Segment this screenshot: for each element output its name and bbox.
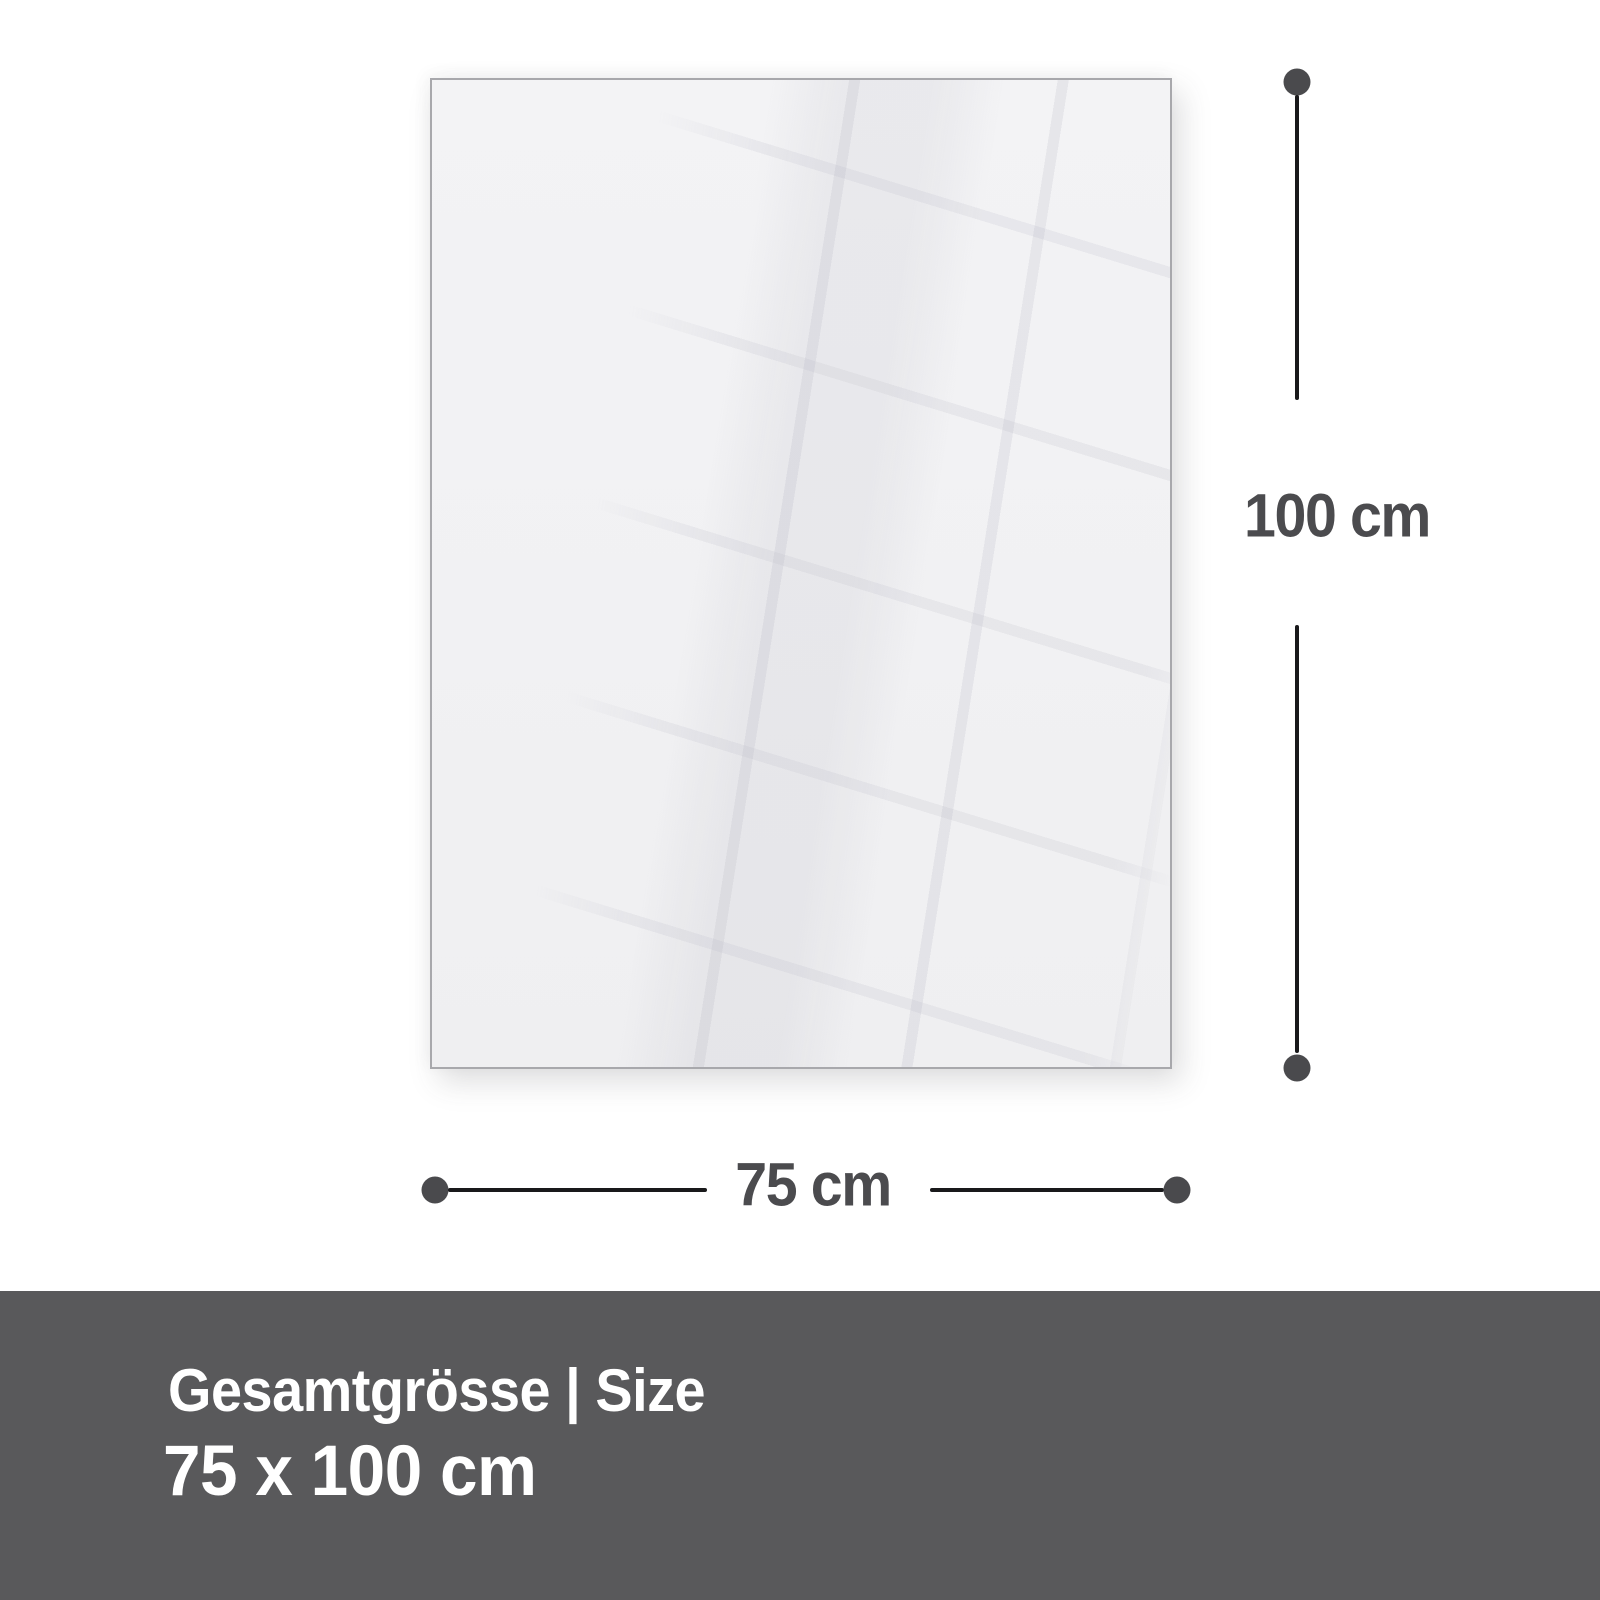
footer-title: Gesamtgrösse | Size bbox=[168, 1361, 705, 1421]
height-dimension-label: 100 cm bbox=[1244, 481, 1430, 551]
height-dimension-line-lower bbox=[1295, 625, 1299, 1053]
width-dimension-label: 75 cm bbox=[735, 1150, 891, 1220]
footer-size-band: Gesamtgrösse | Size 75 x 100 cm bbox=[0, 1291, 1600, 1600]
product-size-infographic: 100 cm 75 cm Gesamtgrösse | Size 75 x 10… bbox=[0, 0, 1600, 1600]
height-dimension-bottom-dot-icon bbox=[1284, 1055, 1311, 1082]
glass-panel-preview bbox=[430, 78, 1172, 1069]
panel-reflection bbox=[432, 80, 1170, 1067]
height-dimension-top-dot-icon bbox=[1284, 69, 1311, 96]
width-dimension-right-dot-icon bbox=[1164, 1177, 1191, 1204]
width-dimension-line-left bbox=[448, 1188, 707, 1192]
footer-size-value: 75 x 100 cm bbox=[163, 1436, 537, 1507]
width-dimension-left-dot-icon bbox=[422, 1177, 449, 1204]
height-dimension-line-upper bbox=[1295, 95, 1299, 400]
width-dimension-line-right bbox=[930, 1188, 1164, 1192]
